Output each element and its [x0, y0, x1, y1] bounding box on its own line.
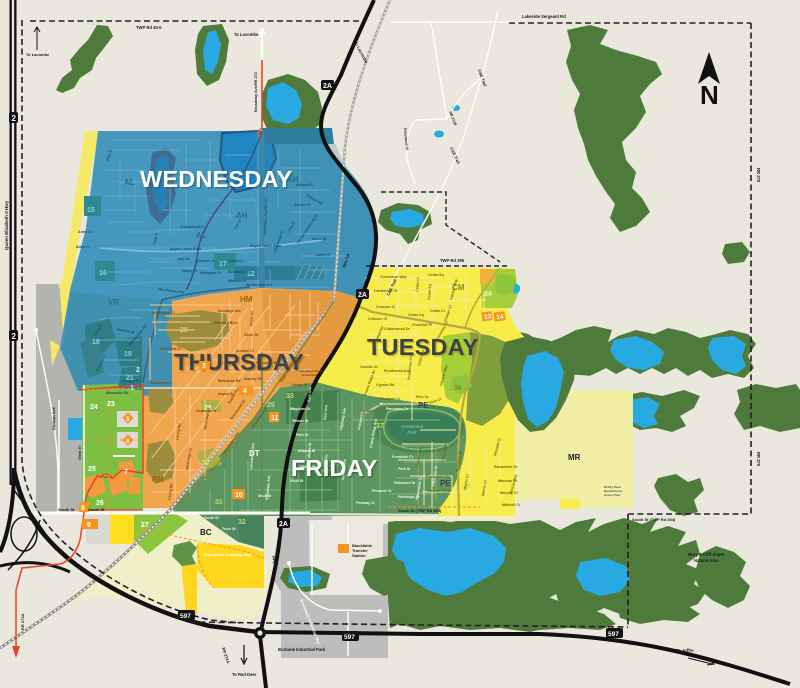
svg-text:Crimson Ct: Crimson Ct	[368, 317, 388, 321]
svg-text:Stanford Blvd: Stanford Blvd	[214, 321, 238, 325]
svg-text:Camille Ct: Camille Ct	[360, 365, 378, 369]
svg-text:Womacks Rd: Womacks Rd	[256, 361, 279, 365]
svg-text:Pondside Cr: Pondside Cr	[392, 455, 414, 459]
svg-text:To Joffre: To Joffre	[676, 648, 694, 653]
svg-text:Vintage Cl: Vintage Cl	[122, 379, 140, 383]
svg-text:597: 597	[344, 634, 355, 641]
svg-text:11: 11	[271, 415, 279, 422]
svg-text:Silver Dr: Silver Dr	[244, 333, 259, 337]
svg-text:Valley Cr: Valley Cr	[182, 269, 198, 273]
svg-text:Blackfalds Crossing Way: Blackfalds Crossing Way	[204, 552, 252, 557]
svg-text:Plumtree Cr: Plumtree Cr	[380, 397, 401, 401]
svg-text:23: 23	[107, 401, 115, 408]
svg-text:Pine Cr: Pine Cr	[416, 395, 429, 399]
svg-text:Sunrise Cl: Sunrise Cl	[236, 349, 254, 353]
svg-text:South St (TWP Rd 394): South St (TWP Rd 394)	[632, 517, 676, 522]
svg-text:Westgate Cr: Westgate Cr	[200, 271, 222, 275]
svg-text:2: 2	[12, 332, 17, 341]
svg-text:Coachman Way: Coachman Way	[380, 275, 407, 279]
svg-text:To Red Deer: To Red Deer	[232, 672, 257, 677]
svg-text:Woodbine Cl: Woodbine Cl	[228, 270, 250, 274]
svg-text:Portway Cl: Portway Cl	[356, 501, 375, 505]
svg-text:South St: South St	[88, 507, 105, 512]
svg-text:2A: 2A	[323, 83, 332, 90]
svg-text:Anna Cl: Anna Cl	[78, 230, 92, 234]
svg-text:Pinetree Cl: Pinetree Cl	[420, 437, 439, 441]
svg-text:To Lacombe: To Lacombe	[26, 52, 50, 57]
svg-text:2: 2	[136, 367, 140, 374]
svg-text:Lakeside Sergeant Rd: Lakeside Sergeant Rd	[522, 14, 566, 19]
svg-text:Homes Park: Homes Park	[604, 493, 621, 497]
svg-text:Arrowwood Cl: Arrowwood Cl	[180, 225, 204, 229]
svg-text:27: 27	[141, 522, 149, 529]
svg-text:Adina Cl: Adina Cl	[228, 259, 243, 263]
svg-text:31: 31	[215, 499, 223, 506]
svg-text:Sunridge Ave: Sunridge Ave	[218, 309, 241, 313]
svg-text:3: 3	[202, 363, 206, 370]
svg-text:2: 2	[12, 114, 17, 123]
svg-text:9: 9	[87, 522, 91, 529]
svg-text:33: 33	[286, 393, 294, 400]
svg-text:Stanley St: Stanley St	[244, 377, 262, 381]
svg-text:AL: AL	[124, 178, 135, 187]
svg-text:Trout St: Trout St	[222, 527, 236, 531]
svg-text:32: 32	[238, 519, 246, 526]
svg-text:Cedar Cr: Cedar Cr	[430, 309, 446, 313]
svg-text:2A: 2A	[358, 292, 367, 299]
svg-text:Palisades St: Palisades St	[394, 481, 416, 485]
svg-text:20: 20	[180, 327, 188, 334]
svg-text:Wellington Cl: Wellington Cl	[152, 311, 175, 315]
svg-text:RR 270: RR 270	[756, 452, 761, 467]
svg-text:36: 36	[454, 385, 462, 392]
svg-text:Westbrooke Rd: Westbrooke Rd	[246, 283, 272, 287]
svg-text:Home Park: Home Park	[302, 373, 317, 377]
svg-text:Pinnacle Cl: Pinnacle Cl	[372, 489, 391, 493]
svg-text:Duncan Ave: Duncan Ave	[51, 406, 56, 430]
svg-text:Park: Park	[407, 430, 417, 435]
svg-text:26: 26	[96, 500, 104, 507]
svg-text:1: 1	[130, 385, 134, 392]
svg-text:Queen Elizabeth II Hwy: Queen Elizabeth II Hwy	[4, 200, 9, 250]
svg-text:13: 13	[484, 313, 493, 321]
svg-text:Broadway Ave/RR 272: Broadway Ave/RR 272	[254, 72, 258, 112]
svg-text:Aspen Dr W: Aspen Dr W	[196, 409, 217, 413]
svg-text:AL: AL	[196, 231, 207, 240]
svg-text:TWP Rd 395: TWP Rd 395	[440, 258, 465, 263]
svg-text:Pinewood Cl: Pinewood Cl	[360, 409, 382, 413]
svg-text:Burbank Industrial Park: Burbank Industrial Park	[278, 647, 326, 652]
svg-text:16: 16	[99, 270, 107, 277]
svg-text:Park St: Park St	[296, 433, 309, 437]
svg-text:TWP Rd 40-0: TWP Rd 40-0	[136, 25, 162, 30]
svg-text:To Lacombe: To Lacombe	[234, 32, 259, 37]
svg-text:WEDNESDAY: WEDNESDAY	[140, 166, 293, 192]
svg-text:Cedar Sq: Cedar Sq	[428, 273, 444, 277]
svg-text:RR 270: RR 270	[756, 168, 761, 183]
svg-text:South St: South St	[58, 507, 75, 512]
svg-text:Aztec St: Aztec St	[312, 237, 327, 241]
svg-text:Shull St: Shull St	[290, 479, 304, 483]
svg-text:Mary & Cliff Soper: Mary & Cliff Soper	[688, 552, 725, 557]
svg-text:Athens Pl: Athens Pl	[294, 203, 311, 207]
svg-text:Waghorn St: Waghorn St	[290, 407, 311, 411]
svg-text:Cyprus Rd: Cyprus Rd	[376, 383, 394, 387]
svg-text:Almond Cr: Almond Cr	[196, 259, 215, 263]
svg-text:24: 24	[90, 404, 98, 411]
svg-text:Womacks Rd: Womacks Rd	[218, 379, 241, 383]
svg-text:HM: HM	[240, 295, 253, 304]
svg-text:7: 7	[124, 469, 128, 476]
svg-text:Churchill Pl: Churchill Pl	[412, 323, 432, 327]
svg-text:Ponderosa Ave: Ponderosa Ave	[384, 369, 410, 373]
svg-text:Cottonwood Dr: Cottonwood Dr	[384, 327, 411, 331]
svg-text:Eastpointe Dr: Eastpointe Dr	[426, 475, 450, 479]
svg-text:Winston Pl: Winston Pl	[228, 279, 247, 283]
svg-text:Piper Cl: Piper Cl	[426, 449, 440, 453]
svg-text:Eastpointe Dr: Eastpointe Dr	[494, 465, 518, 469]
svg-text:Arlen Cl: Arlen Cl	[76, 245, 90, 249]
svg-text:597: 597	[608, 631, 619, 638]
svg-text:18: 18	[92, 339, 100, 346]
svg-text:Vista Tr: Vista Tr	[77, 445, 82, 460]
svg-text:N: N	[700, 80, 719, 110]
svg-text:VR: VR	[108, 298, 119, 307]
svg-text:Winko St: Winko St	[300, 465, 316, 469]
svg-text:17: 17	[219, 261, 227, 268]
svg-text:14: 14	[496, 313, 505, 321]
svg-text:597: 597	[180, 613, 191, 620]
svg-text:10: 10	[235, 492, 243, 499]
svg-text:Panorama Dr: Panorama Dr	[386, 407, 409, 411]
svg-text:Aspen Lakes Blvd: Aspen Lakes Blvd	[170, 247, 201, 251]
svg-text:Mitchell Cr: Mitchell Cr	[502, 503, 521, 507]
svg-text:Westview Cr: Westview Cr	[160, 347, 182, 351]
svg-text:Ava Cr: Ava Cr	[178, 257, 190, 261]
svg-text:Wilson St: Wilson St	[292, 419, 309, 423]
svg-text:29: 29	[267, 402, 275, 409]
svg-text:30: 30	[201, 460, 209, 467]
svg-text:Gregg St: Gregg St	[292, 383, 308, 387]
svg-text:Palmer Circle: Palmer Circle	[428, 489, 451, 493]
svg-text:RR 273A: RR 273A	[20, 613, 25, 630]
svg-text:RH: RH	[152, 475, 164, 484]
svg-text:Athens Pl: Athens Pl	[296, 183, 313, 187]
svg-text:PE: PE	[418, 401, 429, 410]
svg-text:Park St: Park St	[398, 467, 411, 471]
svg-text:4: 4	[243, 388, 247, 395]
svg-text:15: 15	[87, 207, 95, 214]
svg-text:Cedar Sq: Cedar Sq	[408, 313, 424, 317]
svg-text:Westview Cr: Westview Cr	[150, 381, 172, 385]
svg-text:8: 8	[81, 505, 85, 512]
svg-text:25: 25	[88, 466, 96, 473]
svg-text:Station: Station	[352, 553, 366, 558]
svg-text:South St (TWP Rd 394): South St (TWP Rd 394)	[398, 508, 442, 513]
svg-text:34: 34	[484, 291, 492, 298]
svg-text:Crimson Cl: Crimson Cl	[376, 305, 395, 309]
svg-text:Womacks Rd: Womacks Rd	[106, 391, 129, 395]
svg-text:Centennial: Centennial	[401, 424, 424, 429]
svg-text:Natural Area: Natural Area	[694, 558, 719, 563]
svg-text:2A: 2A	[279, 521, 288, 528]
svg-text:19: 19	[124, 351, 132, 358]
svg-text:Aztec Cr: Aztec Cr	[316, 253, 331, 257]
svg-text:Cambridge Cl: Cambridge Cl	[374, 289, 397, 293]
svg-text:South St: South St	[204, 516, 220, 520]
svg-text:MR: MR	[568, 453, 581, 462]
svg-text:BC: BC	[200, 528, 212, 537]
svg-text:PE: PE	[440, 479, 451, 488]
